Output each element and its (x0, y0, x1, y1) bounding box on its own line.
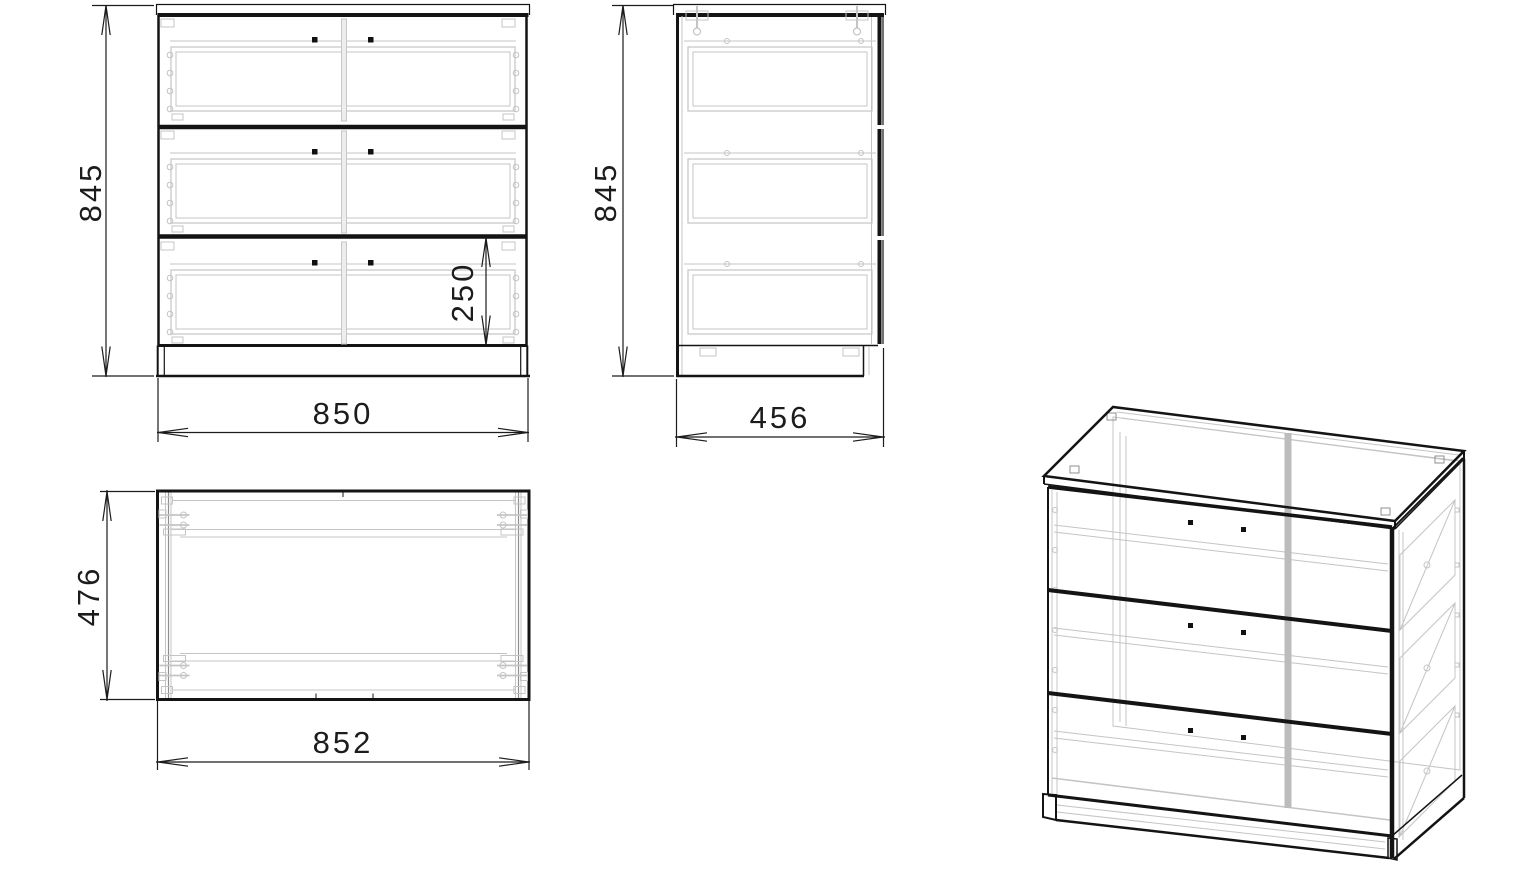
side-cabinet-outline (673, 5, 886, 377)
side-height-dimension: 845 (588, 5, 674, 377)
side-view: 845 456 (588, 5, 886, 448)
top-view-outline (158, 491, 530, 700)
top-width-dimension: 852 (156, 701, 530, 770)
dresser-technical-drawing: 845 850 250 (0, 0, 1540, 872)
side-drawer-box-3 (684, 262, 876, 335)
side-height-label: 845 (588, 162, 623, 223)
front-view: 845 850 250 (73, 5, 530, 443)
iso-front-face (1048, 487, 1392, 858)
front-height-dimension: 845 (73, 5, 154, 377)
front-width-label: 850 (313, 396, 374, 431)
top-side-panels (166, 493, 522, 699)
side-drawer-front-edges (872, 17, 884, 344)
front-drawer-2 (161, 131, 519, 233)
iso-plinth (1043, 794, 1397, 860)
top-rails (172, 501, 515, 691)
top-width-label: 852 (313, 725, 374, 760)
front-plinth (158, 346, 528, 377)
side-depth-dimension: 456 (675, 348, 885, 447)
top-depth-dimension: 476 (71, 490, 155, 701)
front-width-dimension: 850 (157, 378, 529, 442)
side-depth-label: 456 (750, 400, 811, 435)
side-top-fasteners (686, 6, 868, 356)
top-view: 476 852 (71, 490, 530, 770)
top-corner-hardware (159, 497, 528, 694)
drawer-front-height-label: 250 (445, 262, 480, 323)
front-height-label: 845 (73, 162, 108, 223)
top-back-panel-seams (316, 492, 373, 700)
side-drawer-box-1 (684, 39, 876, 112)
top-depth-label: 476 (71, 566, 106, 627)
isometric-view (1043, 407, 1464, 860)
technical-drawing-page: 845 850 250 (0, 0, 1540, 872)
side-drawer-box-2 (684, 151, 876, 224)
iso-wireframe-interior (1052, 412, 1460, 849)
front-drawer-1 (161, 19, 519, 121)
